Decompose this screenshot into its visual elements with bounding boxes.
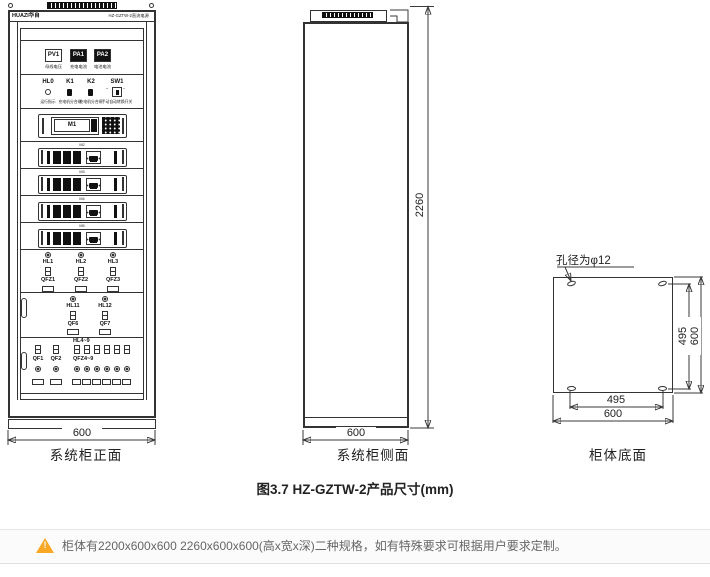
breaker-window-icon: [82, 379, 91, 385]
panel-separator: [20, 249, 144, 250]
module-display-icon: [86, 205, 101, 218]
module-cell: [63, 178, 71, 191]
door-handle-icon: [21, 352, 27, 370]
front-header: HUAZI华自 HZ-GZTW-2直流电源: [10, 11, 154, 22]
fuse-holder-icon: [70, 311, 76, 320]
lamp-label: HL2: [69, 259, 93, 266]
door-handle-icon: [21, 298, 27, 318]
front-view-label: 系统柜正面: [34, 448, 138, 464]
indicator-lamp-icon: [78, 252, 84, 258]
breaker-label: QF1: [28, 356, 48, 363]
door-frame-left: [17, 22, 18, 400]
roof-vent-icon: [322, 12, 373, 18]
control-hl0-caption: 运行指示: [38, 99, 58, 104]
breaker-label: QF6: [61, 321, 85, 328]
module-handle-right: [122, 177, 124, 191]
brand-logo: HUAZI华自: [12, 13, 40, 20]
module-cell: [73, 232, 81, 245]
lamp-label: HL3: [101, 259, 125, 266]
breaker-window-icon: [102, 379, 111, 385]
mounting-hole-icon: [567, 386, 576, 391]
module-handle-right: [122, 150, 124, 164]
fuse-holder-icon: [102, 311, 108, 320]
door-frame-right: [146, 22, 147, 400]
fuse-holder-icon: [74, 345, 80, 354]
hole-diameter-note: 孔径为φ12: [556, 252, 611, 268]
meter-pa1-caption: 充电电流: [66, 64, 91, 69]
fuse-holder-icon: [94, 345, 100, 354]
breaker-window-icon: [112, 379, 121, 385]
rotary-quote-right: ”: [123, 87, 124, 92]
control-k2-label: K2: [81, 79, 101, 86]
meter-pv1-caption: 母线电压: [41, 64, 66, 69]
module-handle-right: [122, 204, 124, 218]
breaker-window-icon: [42, 286, 54, 292]
module-cell: [53, 232, 61, 245]
keypad-icon: [102, 117, 120, 134]
control-hl0-label: HL0: [38, 79, 58, 86]
module-bar: [114, 151, 117, 164]
module-handle-left: [41, 231, 43, 245]
breaker-label: QFZ3: [101, 277, 125, 284]
module-handle-left: [41, 204, 43, 218]
module-label: M4: [29, 196, 134, 201]
meter-pa2-caption: 电池电流: [90, 64, 115, 69]
indicator-lamp-icon: [45, 89, 51, 95]
note-text: 柜体有2200x600x600 2260x600x600(高x宽x深)二种规格，…: [62, 530, 567, 563]
panel-separator: [20, 292, 144, 293]
indicator-lamp-icon: [35, 366, 41, 372]
figure-caption: 图3.7 HZ-GZTW-2产品尺寸(mm): [185, 479, 525, 496]
side-height-dimension: 2260: [414, 184, 426, 226]
indicator-lamp-icon: [114, 366, 120, 372]
breaker-label: QF7: [93, 321, 117, 328]
fuse-holder-icon: [53, 345, 59, 354]
breaker-label: QF2: [46, 356, 66, 363]
rotary-switch-icon: [112, 87, 122, 97]
indicator-lamp-icon: [74, 366, 80, 372]
module-handle-left: [41, 150, 43, 164]
lifting-eye-icon: [149, 3, 154, 8]
control-sw1-label: SW1: [107, 79, 127, 86]
lamp-label: HL12: [93, 303, 117, 310]
fuse-holder-icon: [78, 267, 84, 276]
panel-separator: [20, 393, 144, 394]
module-cell: [53, 178, 61, 191]
control-k2-caption: 充电机分合闸: [79, 99, 103, 104]
pushbutton-icon: [88, 89, 93, 96]
fuse-holder-icon: [45, 267, 51, 276]
fuse-holder-icon: [110, 267, 116, 276]
rotary-quote-left: “: [106, 87, 107, 92]
module-label: M2: [29, 142, 134, 147]
indicator-lamp-icon: [70, 296, 76, 302]
module-display-icon: [86, 232, 101, 245]
control-sw1-caption: 手动自动转换开关: [103, 99, 132, 104]
roof-vent-icon: [47, 2, 117, 9]
bv-495-vertical-dimension: 495: [677, 317, 689, 355]
module-label: M5: [29, 223, 134, 228]
note-bar: ! 柜体有2200x600x600 2260x600x600(高x宽x深)二种规…: [0, 529, 710, 564]
mounting-hole-icon: [658, 386, 667, 391]
side-view-label: 系统柜侧面: [318, 448, 428, 464]
model-header: HZ-GZTW-2直流电源: [108, 13, 148, 18]
side-width-dimension: 600: [336, 427, 376, 439]
lamp-range-label: HL4~9: [73, 338, 90, 345]
indicator-lamp-icon: [102, 296, 108, 302]
breaker-window-icon: [32, 379, 44, 385]
breaker-window-icon: [75, 286, 87, 292]
indicator-lamp-icon: [84, 366, 90, 372]
breaker-label: QFZ2: [69, 277, 93, 284]
meter-pa1: PA1: [70, 49, 87, 62]
breaker-window-icon: [99, 329, 111, 335]
bv-495-horizontal-dimension: 495: [596, 394, 636, 406]
control-k1-label: K1: [60, 79, 80, 86]
fuse-holder-icon: [104, 345, 110, 354]
lamp-label: HL1: [36, 259, 60, 266]
module-cell: [63, 232, 71, 245]
module-bar: [47, 178, 50, 191]
module-bar: [47, 232, 50, 245]
fuse-holder-icon: [124, 345, 130, 354]
module-bar: [47, 151, 50, 164]
front-width-dimension: 600: [62, 427, 102, 439]
figure-page: HUAZI华自 HZ-GZTW-2直流电源 PV1 母线电压 PA1 充电电流 …: [0, 0, 710, 577]
module-bar: [114, 232, 117, 245]
module-cell: [53, 151, 61, 164]
lifting-eye-icon: [8, 3, 13, 8]
monitor-side-block: [91, 119, 97, 132]
indicator-lamp-icon: [124, 366, 130, 372]
meter-pa2: PA2: [94, 49, 111, 62]
indicator-lamp-icon: [104, 366, 110, 372]
panel-separator: [20, 40, 144, 41]
bv-600-horizontal-dimension: 600: [593, 408, 633, 420]
breaker-window-icon: [67, 329, 79, 335]
module-cell: [73, 205, 81, 218]
base-plate-outline: [553, 277, 673, 393]
module-display-icon: [86, 151, 101, 164]
breaker-window-icon: [50, 379, 62, 385]
module-label: M3: [29, 169, 134, 174]
side-roof-bracket: [390, 10, 408, 22]
breaker-window-icon: [92, 379, 101, 385]
module-cell: [53, 205, 61, 218]
indicator-lamp-icon: [110, 252, 116, 258]
module-handle-right: [122, 231, 124, 245]
breaker-window-icon: [72, 379, 81, 385]
lamp-label: HL11: [61, 303, 85, 310]
breaker-window-icon: [122, 379, 131, 385]
module-cell: [63, 205, 71, 218]
indicator-lamp-icon: [94, 366, 100, 372]
warning-exclamation: !: [36, 540, 54, 550]
fuse-holder-icon: [84, 345, 90, 354]
indicator-lamp-icon: [53, 366, 59, 372]
breaker-range-label: QFZ4~9: [73, 356, 93, 363]
module-bar: [114, 205, 117, 218]
breaker-label: QFZ1: [36, 277, 60, 284]
monitor-screen: M1: [54, 119, 90, 132]
panel-separator: [20, 108, 144, 109]
fuse-holder-icon: [35, 345, 41, 354]
module-display-icon: [86, 178, 101, 191]
meter-pv1: PV1: [45, 49, 62, 62]
module-bar: [47, 205, 50, 218]
module-bar: [114, 178, 117, 191]
panel-separator: [20, 74, 144, 75]
fuse-holder-icon: [114, 345, 120, 354]
module-handle-left: [41, 177, 43, 191]
module-handle-right: [122, 118, 124, 134]
module-cell: [73, 151, 81, 164]
module-cell: [73, 178, 81, 191]
module-cell: [63, 151, 71, 164]
bottom-view-label: 柜体底面: [563, 448, 673, 464]
side-cabinet-outline: [303, 22, 409, 428]
bv-600-vertical-dimension: 600: [689, 317, 701, 355]
breaker-window-icon: [107, 286, 119, 292]
side-base-line: [304, 417, 408, 418]
indicator-lamp-icon: [45, 252, 51, 258]
pushbutton-icon: [67, 89, 72, 96]
module-handle-left: [42, 118, 44, 134]
